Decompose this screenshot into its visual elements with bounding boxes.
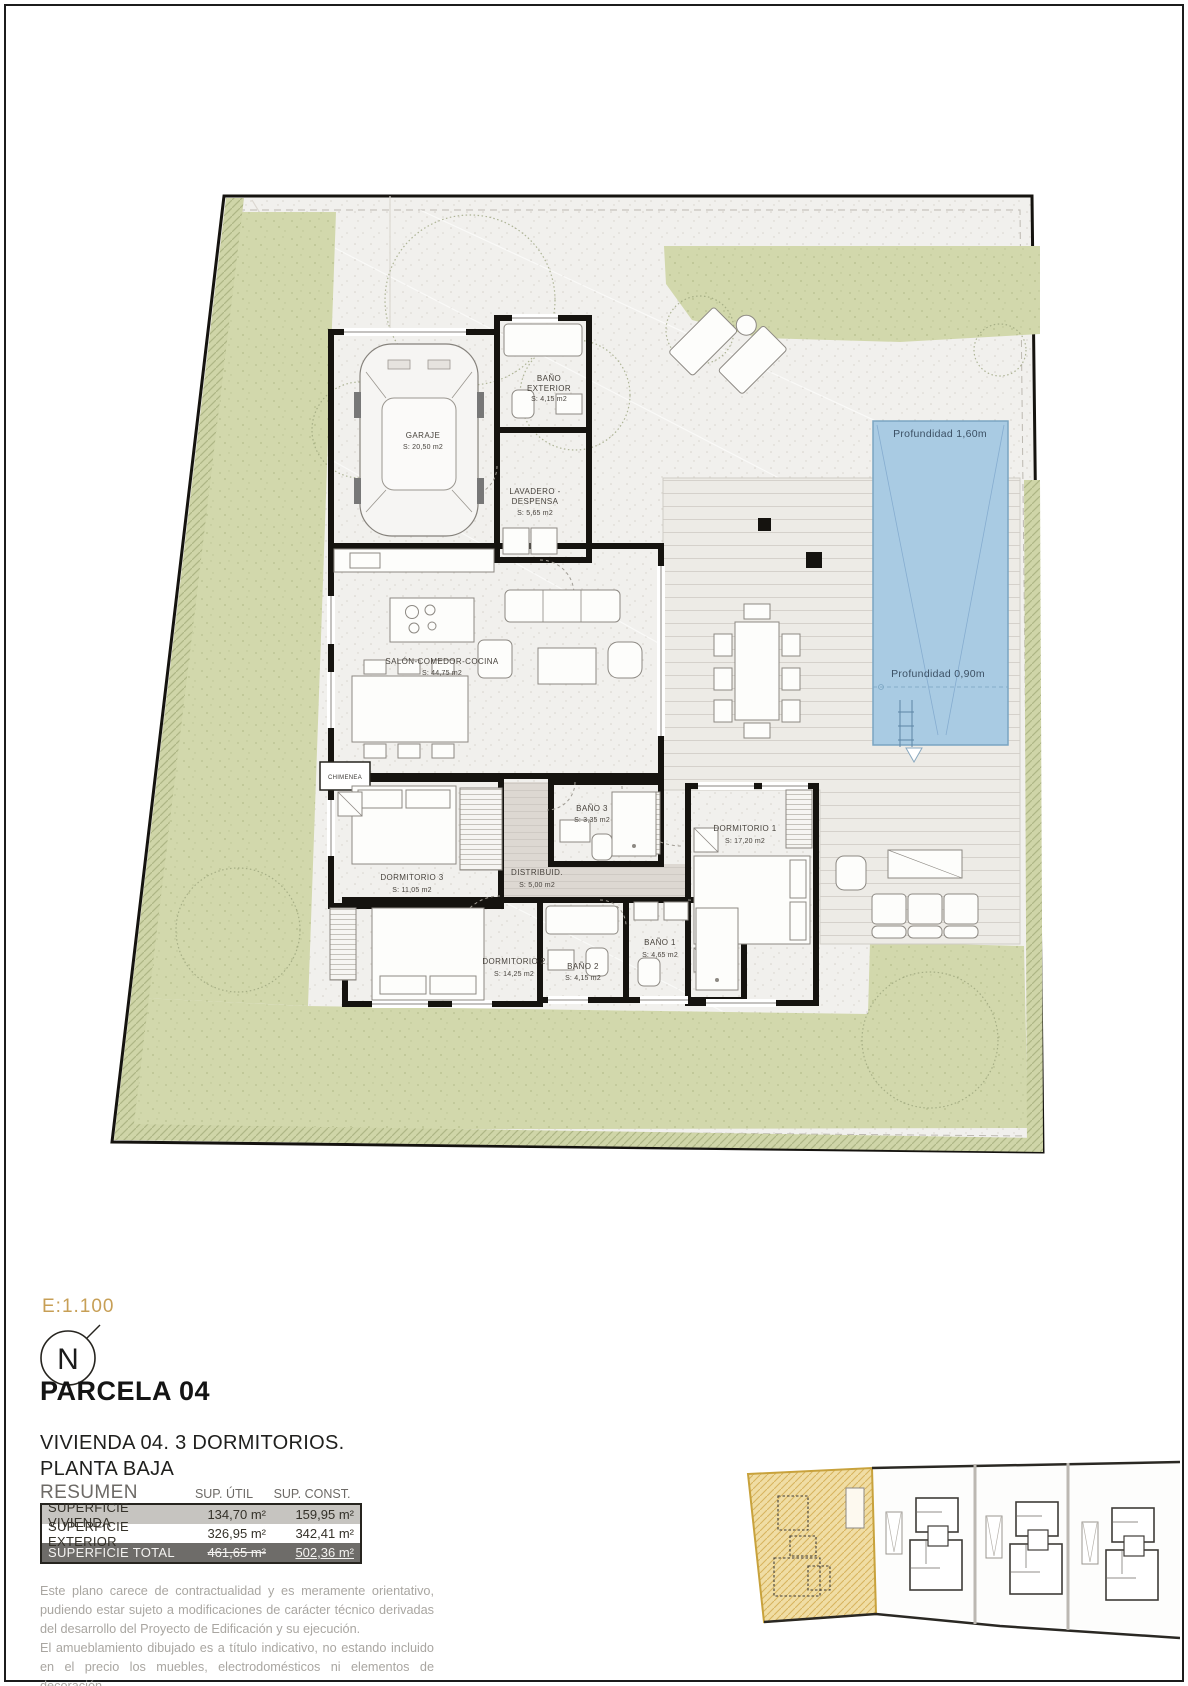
label-salon: SALÓN-COMEDOR-COCINA	[385, 657, 499, 666]
label-dormitorio1-area: S: 17,20 m2	[725, 838, 765, 845]
label-lavadero-2: DESPENSA	[512, 497, 559, 506]
label-bano2-area: S: 4,15 m2	[565, 975, 601, 982]
wardrobe	[330, 908, 356, 980]
row-label: SUPERFICIE TOTAL	[42, 1545, 186, 1560]
shower	[696, 908, 738, 990]
site-plan-drawing: Profundidad 1,60m Profundidad 0,90m	[0, 0, 1188, 1270]
surface-summary-table: SUPERFICIE VIVIENDA 134,70 m² 159,95 m² …	[40, 1503, 362, 1564]
label-salon-area: S: 44,75 m2	[422, 670, 462, 677]
highlighted-parcel-pool	[846, 1488, 864, 1528]
pool: Profundidad 1,60m Profundidad 0,90m	[873, 421, 1008, 762]
row-const-value: 159,95 m²	[266, 1507, 360, 1522]
row-const-value: 342,41 m²	[266, 1526, 360, 1541]
column	[806, 552, 822, 568]
north-letter: N	[57, 1343, 79, 1376]
row-const-value: 502,36 m²	[266, 1545, 360, 1560]
scale-label: E:1.100	[42, 1296, 115, 1318]
label-bano-exterior-area: S: 4,15 m2	[531, 396, 567, 403]
table-row-total: SUPERFICIE TOTAL 461,65 m² 502,36 m²	[42, 1543, 360, 1562]
label-bano2: BAÑO 2	[567, 962, 599, 971]
kitchen-sink	[350, 553, 380, 568]
pool-depth-deep-label: Profundidad 1,60m	[893, 428, 987, 440]
label-bano-exterior-1: BAÑO	[537, 374, 561, 383]
kitchen-island	[390, 598, 474, 642]
table-row-exterior: SUPERFICIE EXTERIOR 326,95 m² 342,41 m²	[42, 1524, 360, 1543]
toilet	[592, 834, 612, 860]
sofa	[505, 590, 620, 622]
toilet	[638, 958, 660, 986]
washbasin	[664, 902, 688, 920]
row-label: SUPERFICIE EXTERIOR	[42, 1519, 186, 1549]
north-tick	[87, 1325, 100, 1338]
dryer	[531, 528, 557, 554]
parcels-overview	[690, 1440, 1180, 1670]
label-dormitorio3-area: S: 11,05 m2	[392, 887, 431, 894]
label-bano3: BAÑO 3	[576, 804, 608, 813]
label-bano-exterior-2: EXTERIOR	[527, 384, 571, 393]
row-util-value: 326,95 m²	[186, 1526, 266, 1541]
pool-depth-shallow-label: Profundidad 0,90m	[891, 668, 985, 680]
summary-col-const: SUP. CONST.	[266, 1487, 358, 1501]
bathtub	[546, 906, 618, 934]
column	[758, 518, 771, 531]
lounge-chair	[608, 642, 642, 678]
wardrobe	[786, 790, 812, 848]
washer	[503, 528, 529, 554]
toilet	[512, 390, 534, 418]
label-distribuidor-area: S: 5,00 m2	[519, 882, 555, 889]
bed-dormitorio2	[372, 908, 484, 1000]
label-dormitorio2: DORMITORIO 2	[482, 957, 545, 966]
row-util-value: 134,70 m²	[186, 1507, 266, 1522]
disclaimer-p2: El amueblamiento dibujado es a título in…	[40, 1639, 434, 1686]
bathtub	[504, 324, 582, 356]
label-distribuidor: DISTRIBUID.	[511, 868, 563, 877]
page-title: PARCELA 04	[40, 1376, 210, 1407]
label-bano1: BAÑO 1	[644, 938, 676, 947]
label-lavadero-area: S: 5,65 m2	[517, 510, 553, 517]
label-dormitorio2-area: S: 14,25 m2	[494, 971, 534, 978]
washbasin	[634, 902, 658, 920]
subtitle-line-1: VIVIENDA 04. 3 DORMITORIOS.	[40, 1430, 344, 1456]
label-garaje: GARAJE	[406, 431, 440, 440]
label-bano1-area: S: 4,65 m2	[642, 952, 678, 959]
label-dormitorio1: DORMITORIO 1	[713, 824, 776, 833]
label-lavadero-1: LAVADERO -	[509, 487, 560, 496]
coffee-table	[538, 648, 596, 684]
disclaimer-p1: Este plano carece de contractualidad y e…	[40, 1582, 434, 1639]
bed-dormitorio3	[338, 786, 456, 864]
subtitle-line-2: PLANTA BAJA	[40, 1456, 344, 1482]
disclaimer: Este plano carece de contractualidad y e…	[40, 1582, 434, 1686]
plan-subtitle: VIVIENDA 04. 3 DORMITORIOS. PLANTA BAJA	[40, 1430, 344, 1482]
label-bano3-area: S: 3,35 m2	[574, 817, 610, 824]
label-garaje-area: S: 20,50 m2	[403, 444, 443, 451]
label-dormitorio3: DORMITORIO 3	[380, 873, 443, 882]
summary-col-util: SUP. ÚTIL	[182, 1487, 266, 1501]
plan-sheet: Profundidad 1,60m Profundidad 0,90m	[0, 0, 1188, 1686]
label-chimenea: CHIMENEA	[328, 775, 362, 781]
wardrobe	[460, 788, 502, 870]
row-util-value: 461,65 m²	[186, 1545, 266, 1560]
dining-table	[352, 676, 468, 742]
car	[354, 344, 484, 536]
